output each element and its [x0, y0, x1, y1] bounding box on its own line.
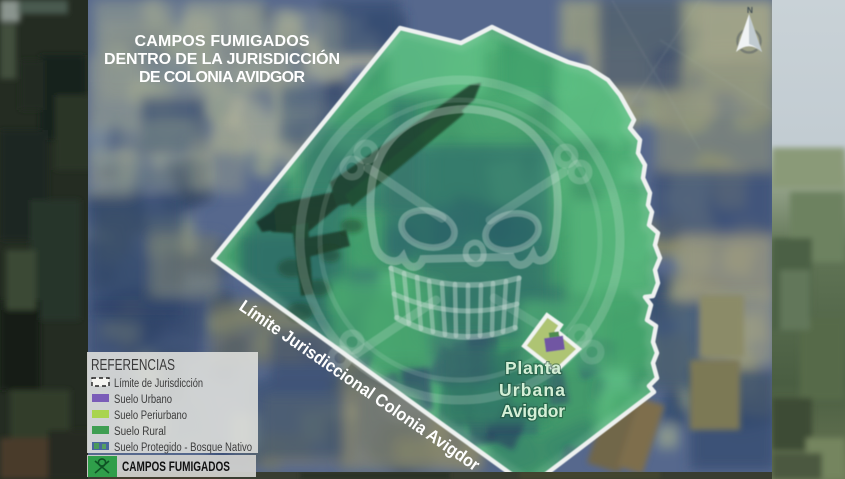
svg-text:CAMPOS FUMIGADOS: CAMPOS FUMIGADOS	[122, 459, 230, 474]
svg-text:DENTRO DE LA JURISDICCIÓN: DENTRO DE LA JURISDICCIÓN	[104, 49, 340, 68]
svg-text:Suelo Rural: Suelo Rural	[114, 426, 166, 438]
svg-text:Suelo Protegido - Bosque Nativ: Suelo Protegido - Bosque Nativo	[114, 442, 252, 454]
svg-text:CAMPOS FUMIGADOS: CAMPOS FUMIGADOS	[135, 33, 310, 50]
svg-text:Planta: Planta	[505, 358, 561, 378]
svg-text:Suelo Urbano: Suelo Urbano	[114, 394, 172, 406]
svg-text:Urbana: Urbana	[499, 380, 565, 400]
svg-text:Suelo Periurbano: Suelo Periurbano	[114, 410, 187, 422]
svg-text:Avigdor: Avigdor	[501, 401, 565, 421]
svg-text:Límite de Jurisdicción: Límite de Jurisdicción	[114, 378, 203, 390]
svg-text:REFERENCIAS: REFERENCIAS	[91, 357, 175, 374]
svg-text:DE COLONIA AVIDGOR: DE COLONIA AVIDGOR	[139, 69, 305, 86]
